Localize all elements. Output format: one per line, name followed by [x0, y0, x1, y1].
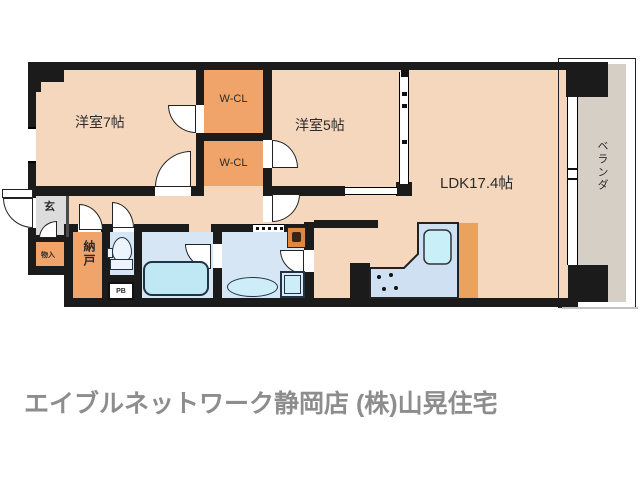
brand-text: エイブルネットワーク静岡店 (株)山晃住宅 [24, 384, 498, 420]
wall [204, 133, 272, 141]
wall [134, 224, 142, 302]
veranda-shadow [562, 307, 638, 309]
bedroom7-label: 洋室7帖 [75, 112, 125, 132]
kitchen-sink [424, 230, 451, 264]
fridge-slot [458, 223, 478, 298]
kitchen-counter [368, 221, 460, 300]
entrance-step-line [66, 196, 69, 237]
wall [350, 263, 370, 300]
wcl-top-label: W-CL [204, 93, 263, 105]
wall [28, 186, 155, 196]
wall [211, 224, 253, 232]
wall [396, 182, 412, 196]
water-heater-icon [292, 232, 301, 242]
wall [213, 268, 222, 302]
toilet-side-unit [107, 248, 113, 258]
burner-dot [389, 273, 393, 277]
partition-tick [402, 140, 407, 144]
partition-tick [402, 104, 407, 108]
wall [196, 70, 204, 105]
sliding-partition [399, 72, 409, 184]
burner-dot [382, 287, 386, 291]
dot [262, 227, 265, 230]
burner-dot [377, 275, 381, 279]
dot [256, 227, 259, 230]
nando-label: 納戸 [81, 240, 98, 268]
wall [28, 62, 574, 70]
wall [566, 62, 608, 97]
bathtub [143, 261, 209, 296]
wall [28, 70, 36, 127]
wall [191, 186, 204, 196]
pipe-box: PB [108, 282, 134, 300]
wall [213, 232, 222, 244]
wall [106, 275, 136, 282]
monoire-label: 物入 [41, 250, 55, 260]
burner-dot [394, 286, 398, 290]
entrance-door [3, 198, 33, 228]
dot [268, 227, 271, 230]
sliding-partition [345, 187, 397, 195]
window [28, 127, 36, 163]
partition-tick [402, 92, 407, 96]
ldk-label: LDK17.4帖 [440, 172, 513, 193]
door-opening [196, 105, 204, 133]
wcl-bottom-label: W-CL [204, 157, 263, 169]
exterior-notch [28, 275, 64, 307]
balcony-window [567, 97, 578, 265]
washing-machine-inner [284, 275, 301, 294]
door-opening [155, 186, 191, 196]
wall [568, 265, 608, 302]
veranda-label: ベランダ [594, 140, 610, 192]
washbasin [227, 277, 278, 297]
wall [64, 298, 578, 307]
floorplan-image: PB 洋室7帖 W-CL W-CL 洋室5帖 LDK17.4帖 ベランダ 玄 納… [0, 0, 640, 480]
wall [196, 133, 204, 186]
window-tick [567, 178, 578, 180]
wall [134, 224, 189, 232]
bedroom5-label: 洋室5帖 [295, 115, 345, 135]
toilet-tank [110, 259, 133, 270]
dot [274, 227, 277, 230]
door-opening [263, 140, 272, 168]
pb-label: PB [116, 288, 126, 295]
door-opening [213, 244, 222, 268]
door-opening [304, 250, 314, 272]
window-tick [567, 168, 578, 170]
partition-tick [401, 70, 409, 77]
dot [280, 227, 283, 230]
entrance-label: 玄 [44, 198, 55, 214]
entrance-door-leaf [2, 189, 33, 198]
wall [263, 70, 272, 140]
door-opening [263, 196, 272, 222]
